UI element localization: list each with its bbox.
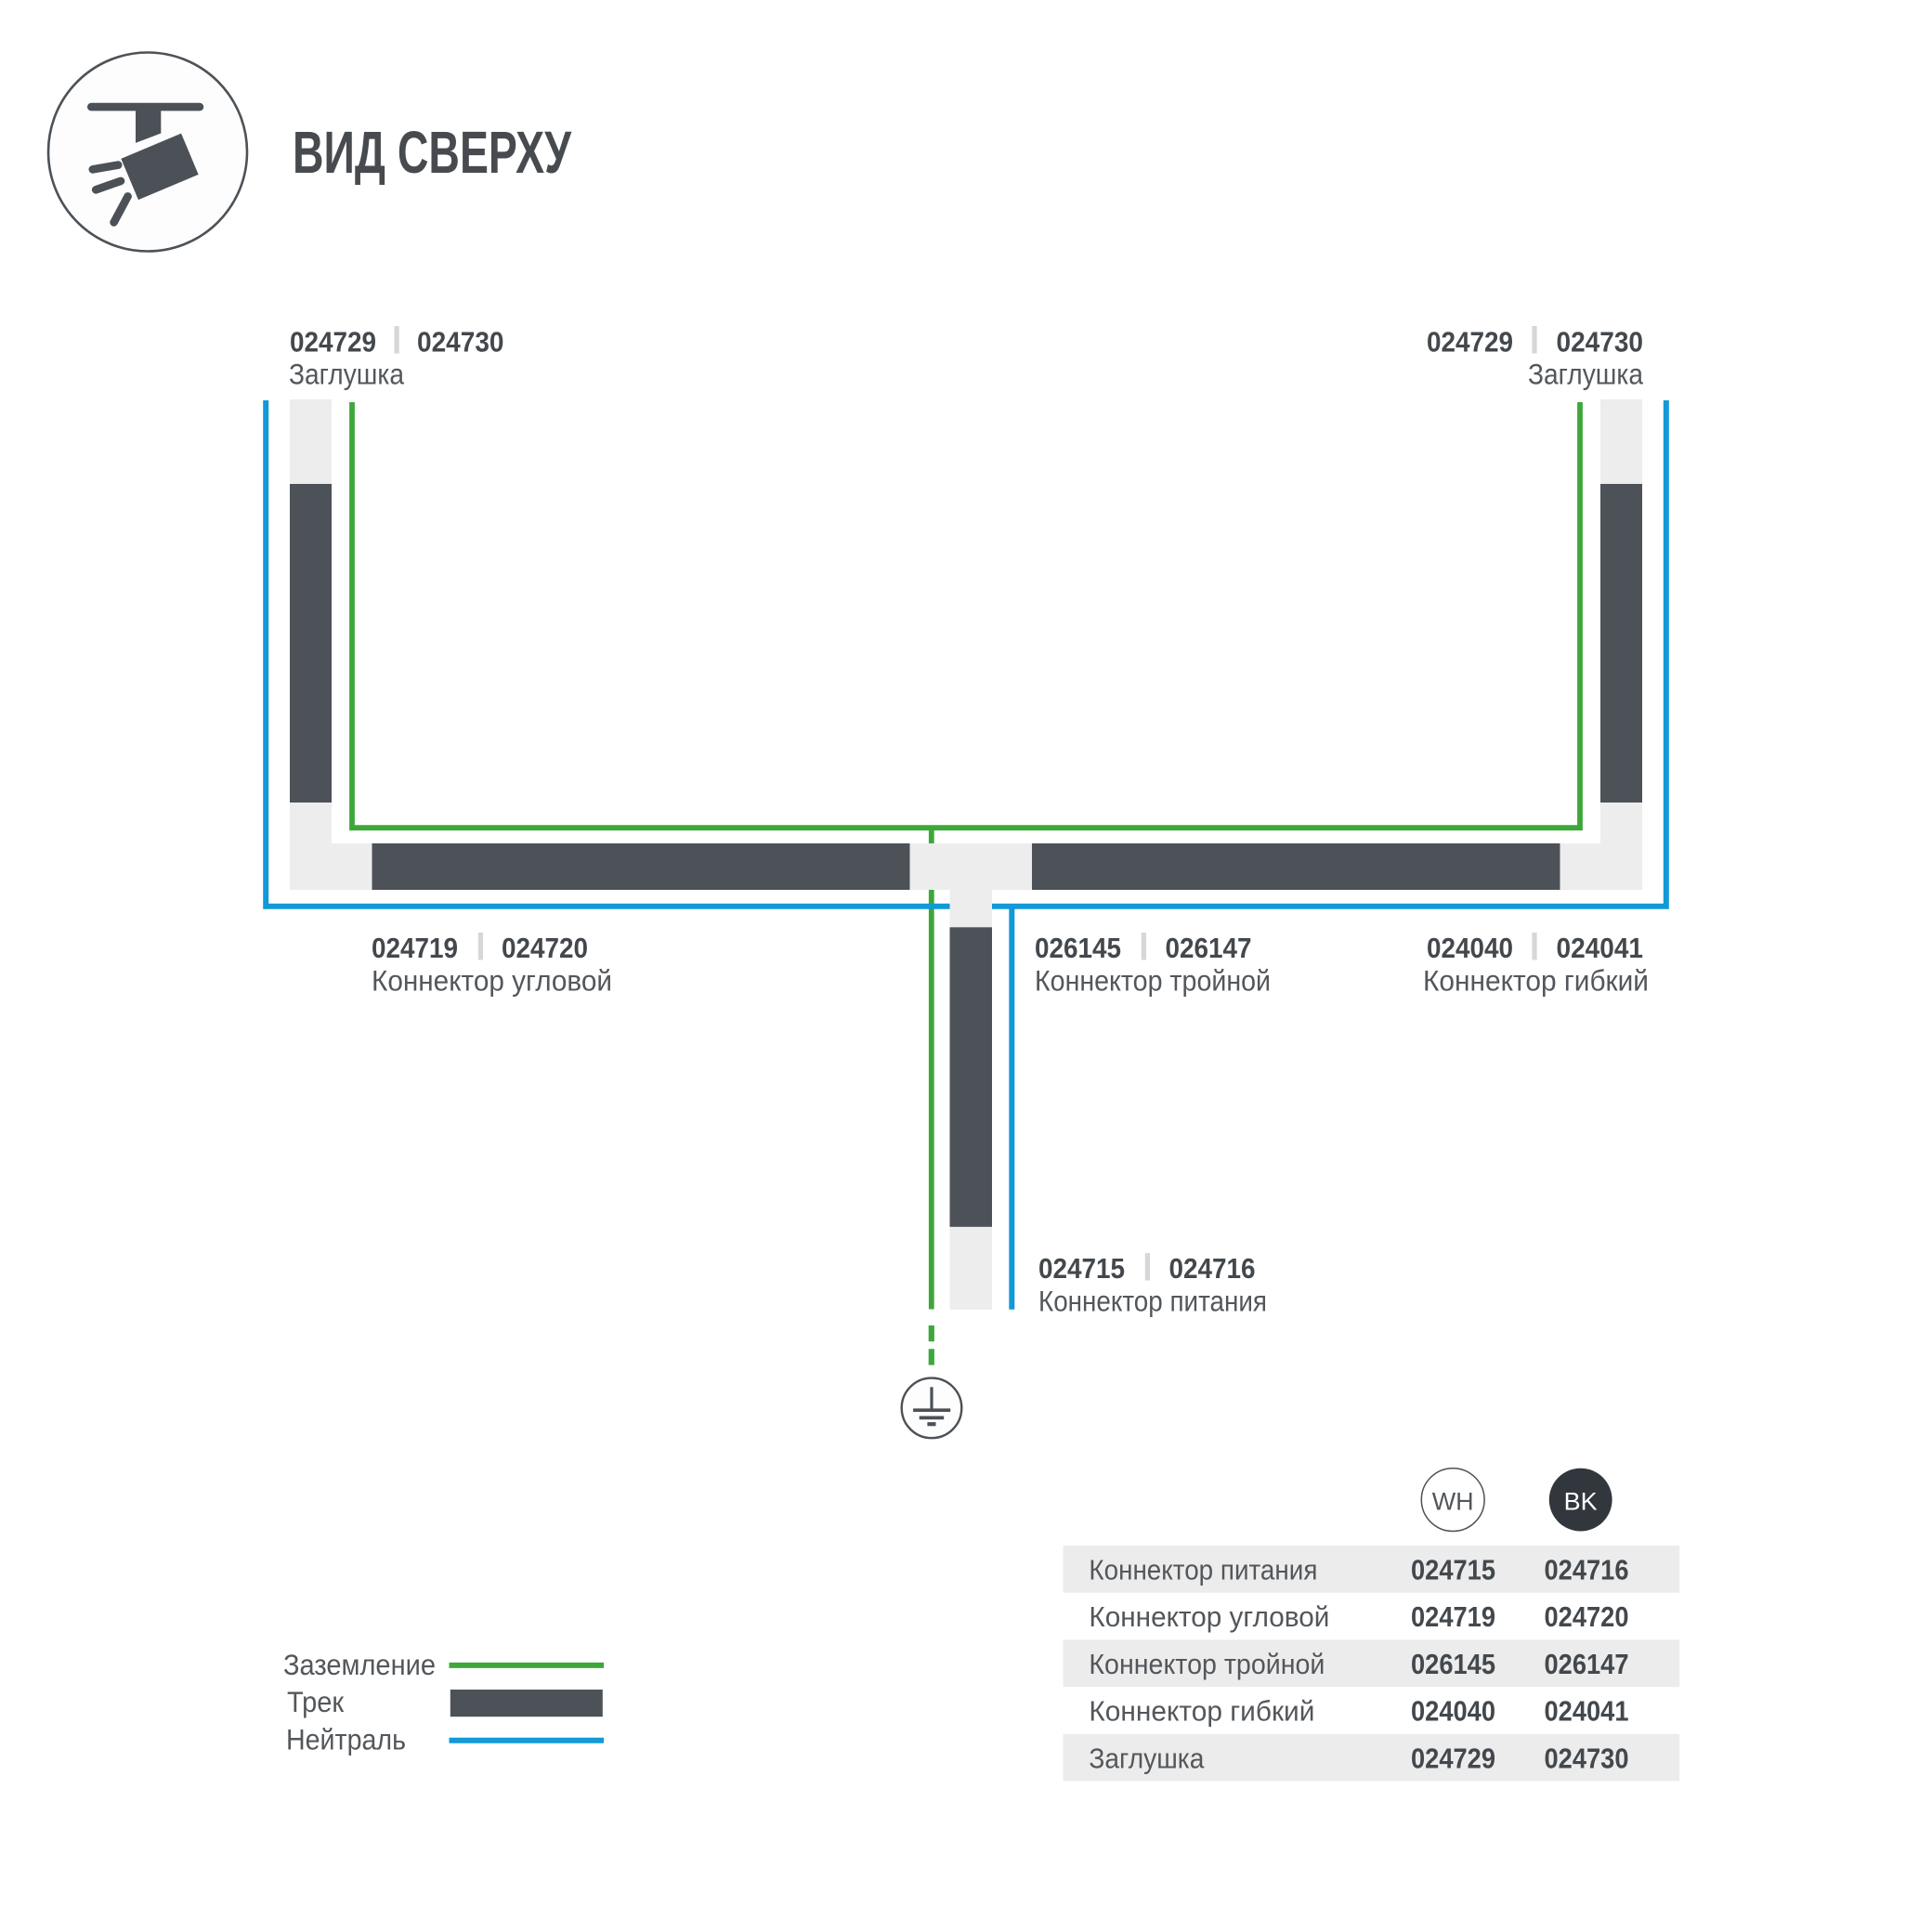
svg-text:024729: 024729 — [1411, 1742, 1495, 1774]
svg-text:024720: 024720 — [1545, 1600, 1629, 1633]
svg-text:Коннектор угловой: Коннектор угловой — [1089, 1600, 1329, 1633]
svg-text:024729: 024729 — [290, 326, 376, 359]
svg-text:ВИД СВЕРХУ: ВИД СВЕРХУ — [293, 119, 572, 186]
svg-text:Коннектор тройной: Коннектор тройной — [1035, 964, 1271, 998]
svg-text:024041: 024041 — [1557, 932, 1644, 964]
svg-text:026145: 026145 — [1411, 1648, 1495, 1680]
svg-text:024719: 024719 — [1411, 1600, 1495, 1633]
svg-text:WH: WH — [1432, 1488, 1474, 1516]
svg-text:024730: 024730 — [1545, 1742, 1629, 1774]
svg-text:024720: 024720 — [502, 932, 588, 964]
svg-text:024719: 024719 — [372, 932, 458, 964]
svg-text:026147: 026147 — [1166, 932, 1252, 964]
svg-text:BK: BK — [1564, 1488, 1598, 1516]
svg-text:024730: 024730 — [417, 326, 504, 359]
svg-text:Трек: Трек — [287, 1685, 344, 1718]
svg-text:024715: 024715 — [1411, 1554, 1495, 1586]
svg-text:Заглушка: Заглушка — [1528, 358, 1643, 391]
svg-text:024040: 024040 — [1427, 932, 1513, 964]
svg-text:Коннектор гибкий: Коннектор гибкий — [1089, 1695, 1314, 1728]
svg-text:Заземление: Заземление — [283, 1648, 436, 1681]
svg-text:Коннектор тройной: Коннектор тройной — [1089, 1648, 1325, 1680]
svg-text:Коннектор гибкий: Коннектор гибкий — [1423, 964, 1649, 998]
svg-text:026147: 026147 — [1545, 1648, 1629, 1680]
svg-text:Коннектор питания: Коннектор питания — [1038, 1285, 1267, 1318]
svg-text:024716: 024716 — [1169, 1252, 1256, 1285]
svg-text:024040: 024040 — [1411, 1695, 1495, 1728]
svg-text:Заглушка: Заглушка — [289, 358, 404, 391]
svg-text:024041: 024041 — [1545, 1695, 1629, 1728]
svg-text:Заглушка: Заглушка — [1089, 1742, 1205, 1774]
svg-text:024716: 024716 — [1545, 1554, 1629, 1586]
svg-text:Нейтраль: Нейтраль — [286, 1723, 406, 1756]
svg-text:Коннектор питания: Коннектор питания — [1089, 1554, 1317, 1586]
svg-text:024715: 024715 — [1038, 1252, 1125, 1285]
svg-text:024730: 024730 — [1557, 326, 1644, 359]
svg-text:024729: 024729 — [1427, 326, 1513, 359]
svg-text:026145: 026145 — [1035, 932, 1121, 964]
svg-text:Коннектор угловой: Коннектор угловой — [372, 964, 612, 998]
